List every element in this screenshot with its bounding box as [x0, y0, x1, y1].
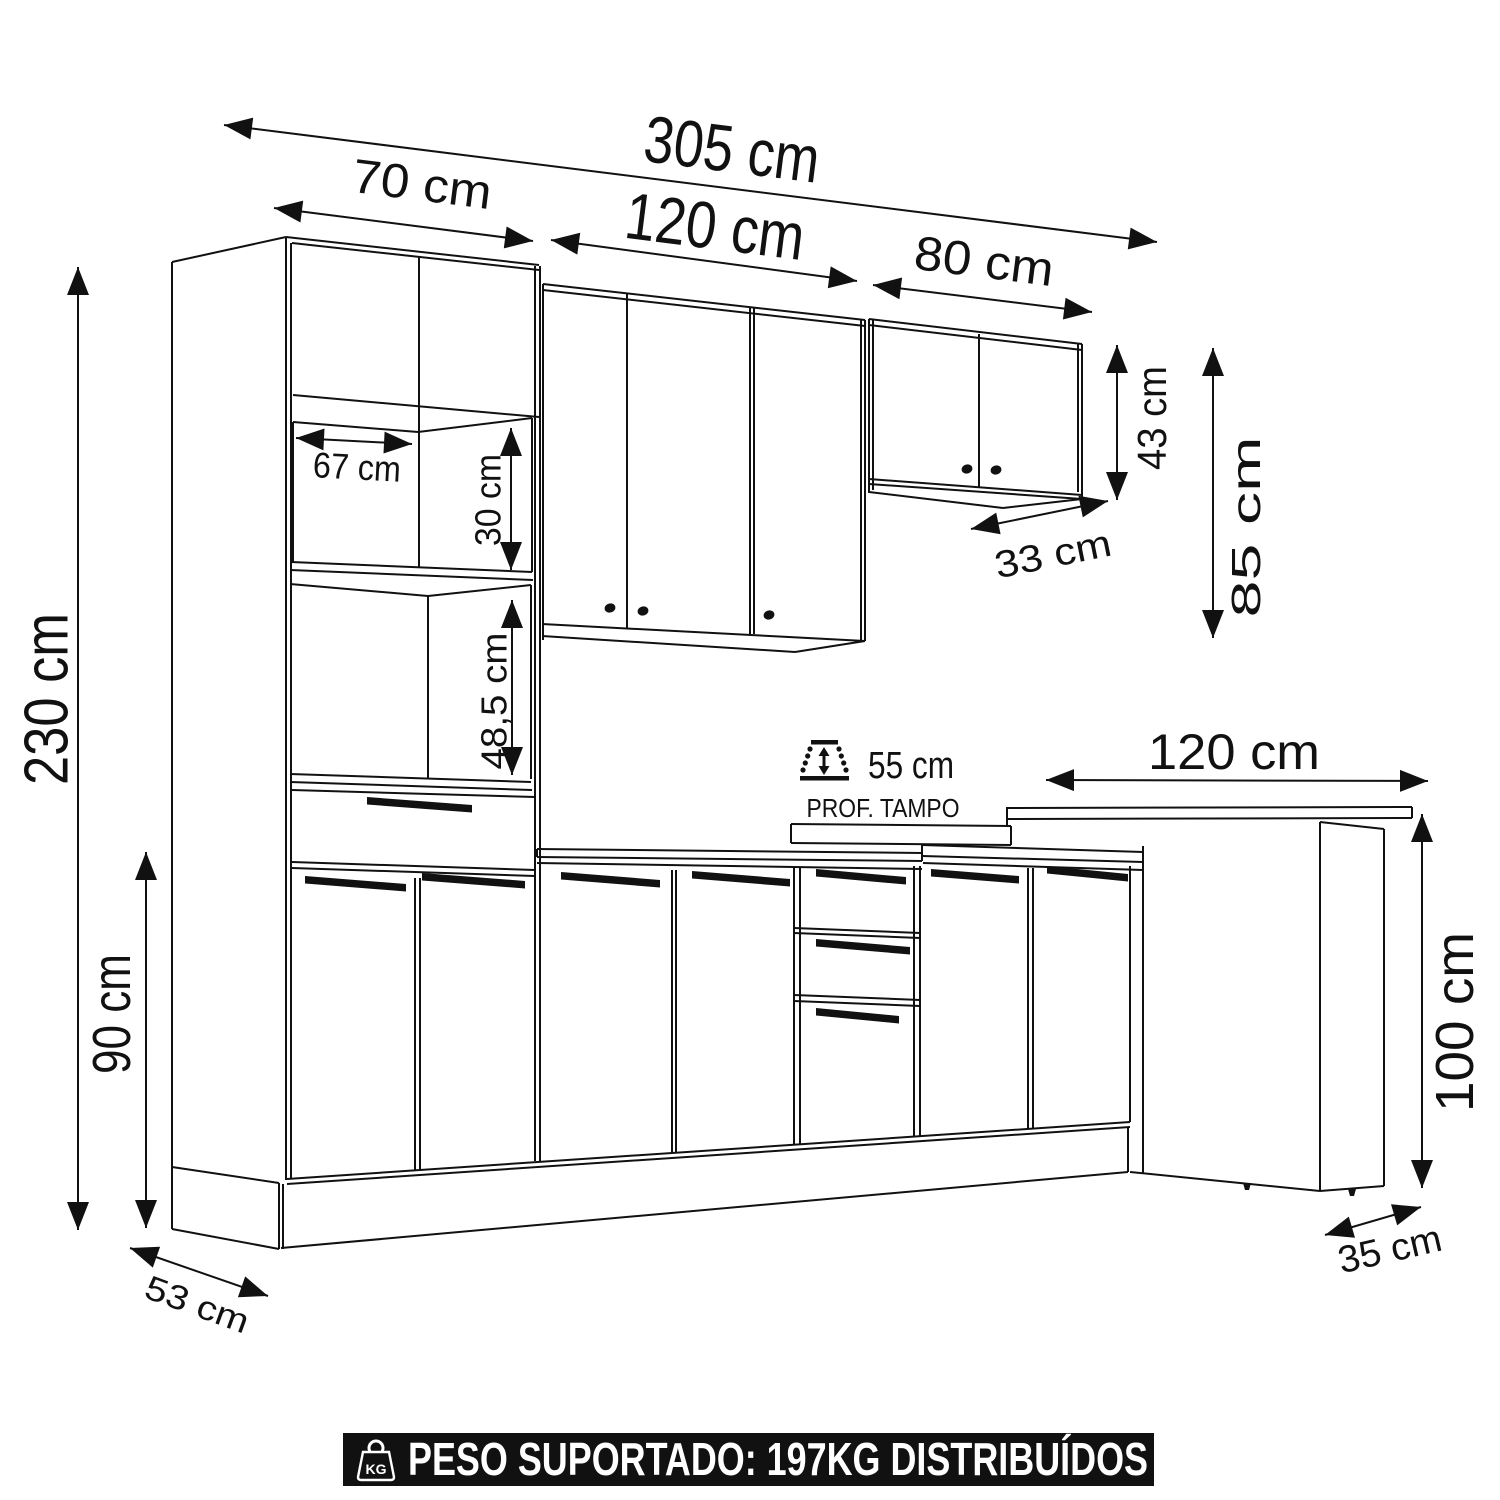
svg-text:80 cm: 80 cm — [911, 227, 1057, 297]
svg-text:43 cm: 43 cm — [1129, 366, 1175, 470]
svg-text:30 cm: 30 cm — [468, 454, 509, 546]
svg-text:33 cm: 33 cm — [991, 523, 1115, 588]
svg-text:PESO SUPORTADO: 197KG DISTRIBU: PESO SUPORTADO: 197KG DISTRIBUÍDOS — [408, 1433, 1148, 1485]
svg-text:KG: KG — [366, 1461, 387, 1477]
svg-text:55 cm: 55 cm — [868, 745, 954, 787]
svg-text:120 cm: 120 cm — [1148, 724, 1320, 780]
svg-text:67 cm: 67 cm — [312, 444, 402, 490]
svg-text:90 cm: 90 cm — [82, 954, 142, 1074]
svg-text:230 cm: 230 cm — [13, 613, 82, 785]
svg-text:53 cm: 53 cm — [140, 1269, 254, 1342]
svg-text:100 cm: 100 cm — [1425, 932, 1485, 1112]
svg-text:48,5 cm: 48,5 cm — [474, 633, 515, 770]
svg-text:70 cm: 70 cm — [349, 150, 495, 220]
svg-text:85 cm: 85 cm — [1223, 437, 1269, 618]
svg-text:PROF. TAMPO: PROF. TAMPO — [807, 793, 960, 823]
